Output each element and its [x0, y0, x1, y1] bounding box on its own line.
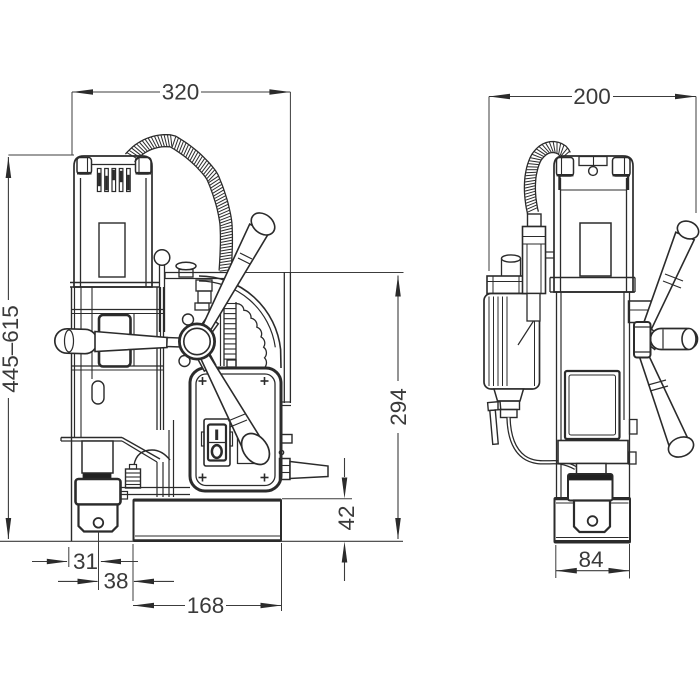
svg-text:38: 38	[103, 569, 128, 594]
svg-text:168: 168	[187, 593, 225, 618]
svg-text:445–615: 445–615	[0, 305, 23, 393]
svg-text:31: 31	[73, 549, 98, 574]
svg-text:42: 42	[334, 505, 359, 530]
svg-text:294: 294	[386, 388, 411, 426]
svg-text:320: 320	[162, 80, 200, 105]
svg-text:200: 200	[573, 84, 611, 109]
svg-text:84: 84	[578, 547, 603, 572]
